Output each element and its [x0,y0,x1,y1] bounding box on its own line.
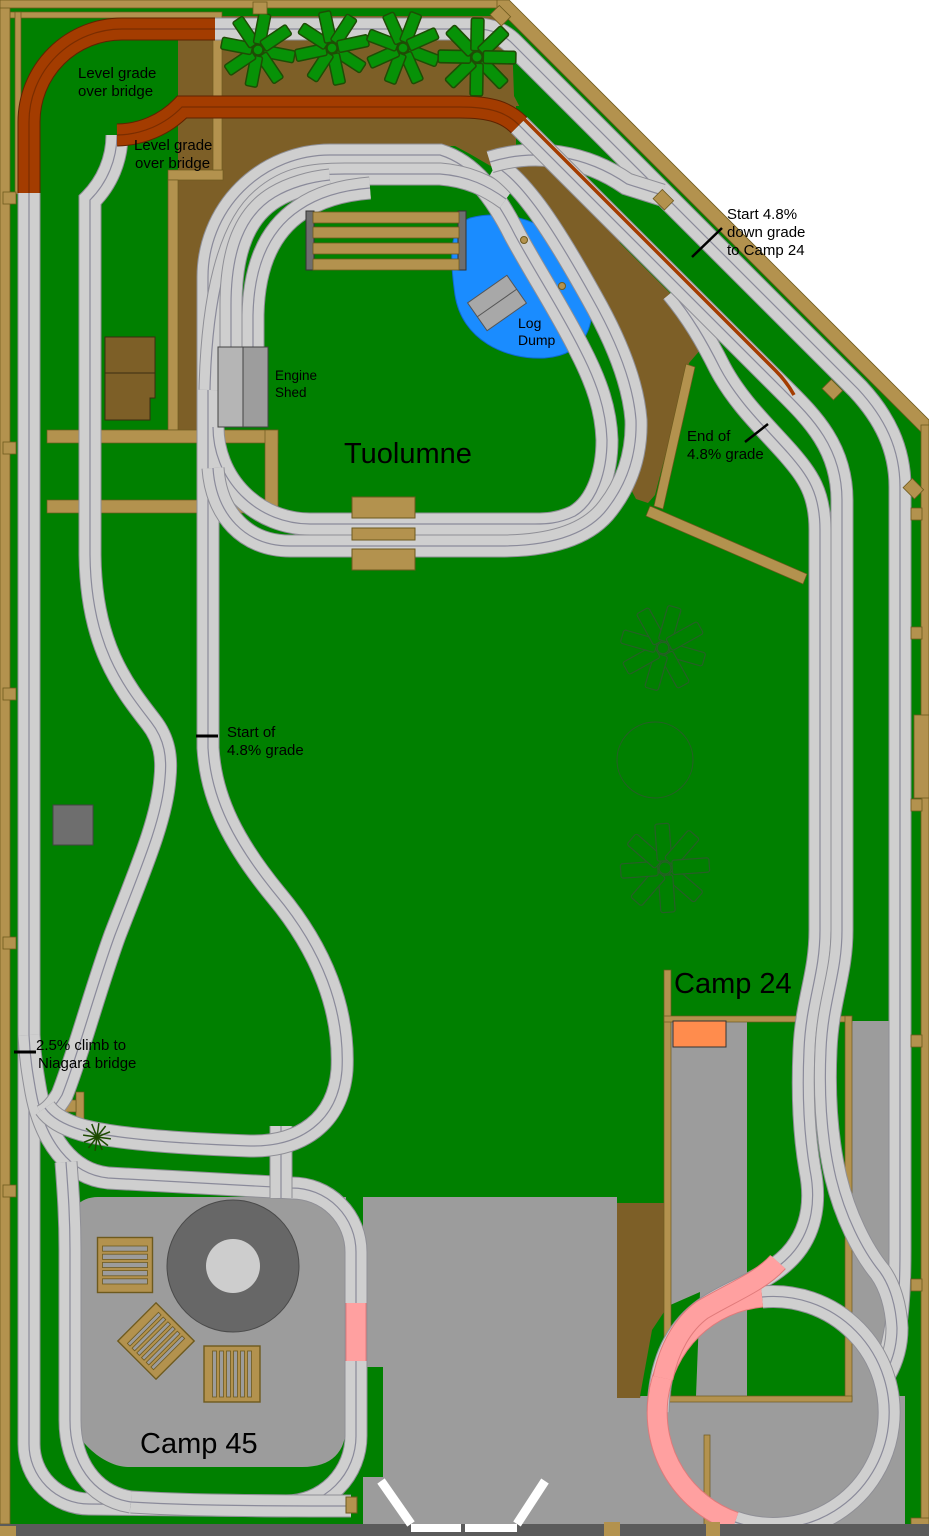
svg-text:Shed: Shed [275,385,307,400]
svg-text:Tuolumne: Tuolumne [344,438,472,470]
svg-text:Start 4.8%: Start 4.8% [727,206,797,223]
svg-text:Engine: Engine [275,368,317,383]
svg-text:Level grade: Level grade [78,65,156,82]
svg-text:Camp 24: Camp 24 [674,968,792,1000]
svg-text:4.8% grade: 4.8% grade [687,446,764,463]
svg-text:Camp 45: Camp 45 [140,1428,258,1460]
svg-text:Log: Log [518,315,541,331]
svg-text:Dump: Dump [518,332,556,348]
svg-text:4.8% grade: 4.8% grade [227,742,304,759]
svg-text:down grade: down grade [727,224,805,241]
svg-text:Level grade: Level grade [134,137,212,154]
svg-text:to Camp 24: to Camp 24 [727,242,805,259]
svg-text:Niagara bridge: Niagara bridge [38,1055,136,1072]
svg-text:Start of: Start of [227,724,276,741]
svg-text:over bridge: over bridge [135,155,210,172]
svg-text:End of: End of [687,428,731,445]
svg-text:2.5% climb to: 2.5% climb to [36,1037,126,1054]
svg-text:over bridge: over bridge [78,83,153,100]
